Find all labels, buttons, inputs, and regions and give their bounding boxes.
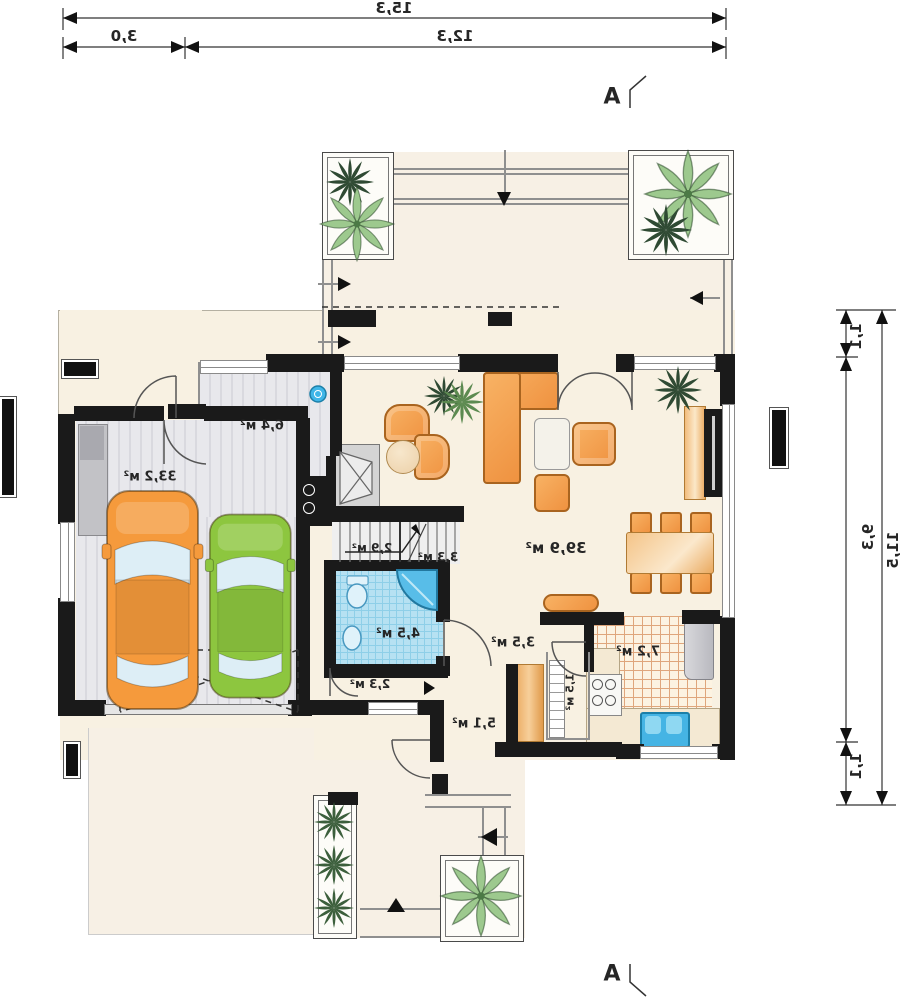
terrace-planter-left bbox=[322, 152, 394, 260]
wall-segment bbox=[616, 354, 634, 372]
walkway-planter-long bbox=[313, 795, 357, 939]
wall-segment bbox=[74, 406, 164, 421]
wall-line bbox=[548, 738, 590, 740]
stove-burner bbox=[605, 679, 616, 690]
dimension-right-middle: 9,3 bbox=[859, 524, 877, 551]
pergola-beam bbox=[392, 198, 628, 200]
room-area-label-closet: 2,3 м² bbox=[350, 677, 391, 691]
fridge bbox=[684, 618, 714, 680]
ottoman bbox=[534, 474, 570, 512]
tv-sideboard bbox=[684, 406, 706, 500]
laundry-drum bbox=[303, 484, 315, 496]
wall-line bbox=[588, 652, 590, 740]
tv-screen-line bbox=[712, 416, 715, 490]
dimension-top-right: 12,3 bbox=[436, 27, 473, 45]
wall-segment bbox=[458, 354, 558, 372]
wall-segment bbox=[58, 598, 75, 716]
dimension-right-top: 1,1 bbox=[847, 323, 865, 350]
sink-basin bbox=[666, 716, 682, 734]
wall-segment bbox=[430, 712, 444, 762]
garage-workbench-top bbox=[80, 426, 104, 460]
coffee-table bbox=[534, 418, 570, 470]
room-area-label-garage: 33,2 м² bbox=[124, 470, 177, 485]
pergola-beam bbox=[392, 168, 628, 170]
walkway-tick-line bbox=[478, 836, 508, 838]
armchair bbox=[572, 422, 616, 466]
wall-segment bbox=[720, 354, 735, 406]
wall-segment bbox=[168, 404, 206, 419]
wall-segment bbox=[540, 612, 624, 625]
wall-segment bbox=[495, 742, 622, 757]
porch-step-line bbox=[425, 794, 511, 796]
window bbox=[368, 702, 418, 715]
wall-segment bbox=[330, 372, 342, 456]
porch-step-line bbox=[425, 806, 511, 808]
bathroom-floor bbox=[333, 568, 443, 666]
laundry-drum bbox=[303, 502, 315, 514]
corner-sofa-side-arm bbox=[483, 372, 521, 484]
stove-burner bbox=[592, 695, 603, 706]
terrace-edge-line bbox=[731, 258, 733, 356]
stove-burner bbox=[605, 695, 616, 706]
dining-table bbox=[626, 532, 714, 574]
wall-segment bbox=[266, 354, 324, 372]
window bbox=[634, 356, 716, 370]
garage-door-leaf bbox=[104, 704, 292, 715]
hall-bench bbox=[543, 594, 599, 612]
terrace-edge-line bbox=[723, 258, 725, 356]
window bbox=[60, 522, 75, 602]
column-tick-line bbox=[318, 283, 346, 285]
wall-segment bbox=[296, 418, 310, 708]
dimension-right-total: 11,5 bbox=[884, 531, 902, 568]
room-area-label-hall: 3,5 м² bbox=[491, 636, 535, 651]
wall-segment bbox=[324, 664, 448, 678]
wardrobe-cabinet bbox=[514, 664, 544, 742]
room-area-label-utility: 6,4 м² bbox=[240, 419, 284, 434]
column-tick-line bbox=[318, 341, 346, 343]
wall-segment bbox=[436, 560, 450, 622]
dining-chair bbox=[690, 572, 712, 594]
wall-line bbox=[546, 652, 548, 740]
pergola-beam bbox=[392, 173, 628, 175]
wall-segment bbox=[720, 616, 735, 760]
room-area-label-stairs-upper: 3,3 м² bbox=[418, 550, 459, 564]
dining-chair bbox=[630, 512, 652, 534]
room-area-label-pantry: 1,5 м² bbox=[564, 673, 577, 710]
porch-edge-line bbox=[202, 310, 322, 311]
pergola-beam bbox=[392, 203, 628, 205]
walkway-line bbox=[482, 808, 484, 860]
column-tick-line bbox=[690, 297, 720, 299]
chimney-marker bbox=[770, 408, 788, 468]
section-marker-top: A bbox=[603, 85, 620, 110]
wall-segment bbox=[324, 560, 336, 678]
window bbox=[640, 746, 718, 759]
wall-segment bbox=[682, 610, 720, 624]
window bbox=[722, 404, 735, 618]
roof-line-stub bbox=[328, 310, 376, 327]
dining-chair bbox=[630, 572, 652, 594]
driveway-apron bbox=[88, 728, 314, 935]
dining-chair bbox=[660, 512, 682, 534]
round-side-table bbox=[386, 440, 420, 474]
chimney-marker bbox=[0, 397, 16, 497]
room-area-label-bathroom: 4,5 м² bbox=[376, 627, 420, 642]
walkway-line bbox=[360, 908, 445, 910]
roof-line-stub bbox=[488, 312, 512, 326]
wall-segment bbox=[58, 414, 75, 524]
dimension-top-left: 3,0 bbox=[111, 27, 138, 45]
wall-segment bbox=[322, 354, 344, 372]
vent-marker bbox=[62, 360, 98, 378]
section-marker-bottom: A bbox=[603, 962, 620, 987]
dimension-right-bottom: 1,1 bbox=[847, 753, 865, 780]
terrace-planter-right bbox=[628, 150, 734, 260]
wall-segment bbox=[324, 506, 464, 522]
dimension-top-total: 15,3 bbox=[375, 0, 412, 17]
pergola-hanger-line bbox=[504, 150, 506, 194]
wall-segment bbox=[506, 664, 518, 744]
floor-plan: 33,2 м² 6,4 м² 39,9 м² 2,9 м² 3,3 м² 4,5… bbox=[0, 0, 902, 1000]
room-area-label-kitchen: 7,2 м² bbox=[616, 645, 660, 660]
walkway-line bbox=[360, 936, 445, 938]
window bbox=[344, 356, 460, 370]
room-area-label-stairs-lower: 2,9 м² bbox=[352, 541, 393, 555]
dining-chair bbox=[660, 572, 682, 594]
chimney-marker bbox=[64, 742, 80, 778]
walkway-line bbox=[504, 808, 506, 860]
dining-chair bbox=[690, 512, 712, 534]
room-area-label-living: 39,9 м² bbox=[525, 539, 586, 557]
wall-segment bbox=[326, 456, 336, 510]
window bbox=[200, 360, 268, 374]
walkway-planter-square bbox=[440, 855, 524, 942]
sink-basin bbox=[645, 716, 661, 734]
room-area-label-entry: 5,1 м² bbox=[452, 717, 496, 732]
walkway-column-stub bbox=[328, 792, 358, 805]
wall-segment bbox=[432, 774, 448, 794]
stove-burner bbox=[592, 679, 603, 690]
